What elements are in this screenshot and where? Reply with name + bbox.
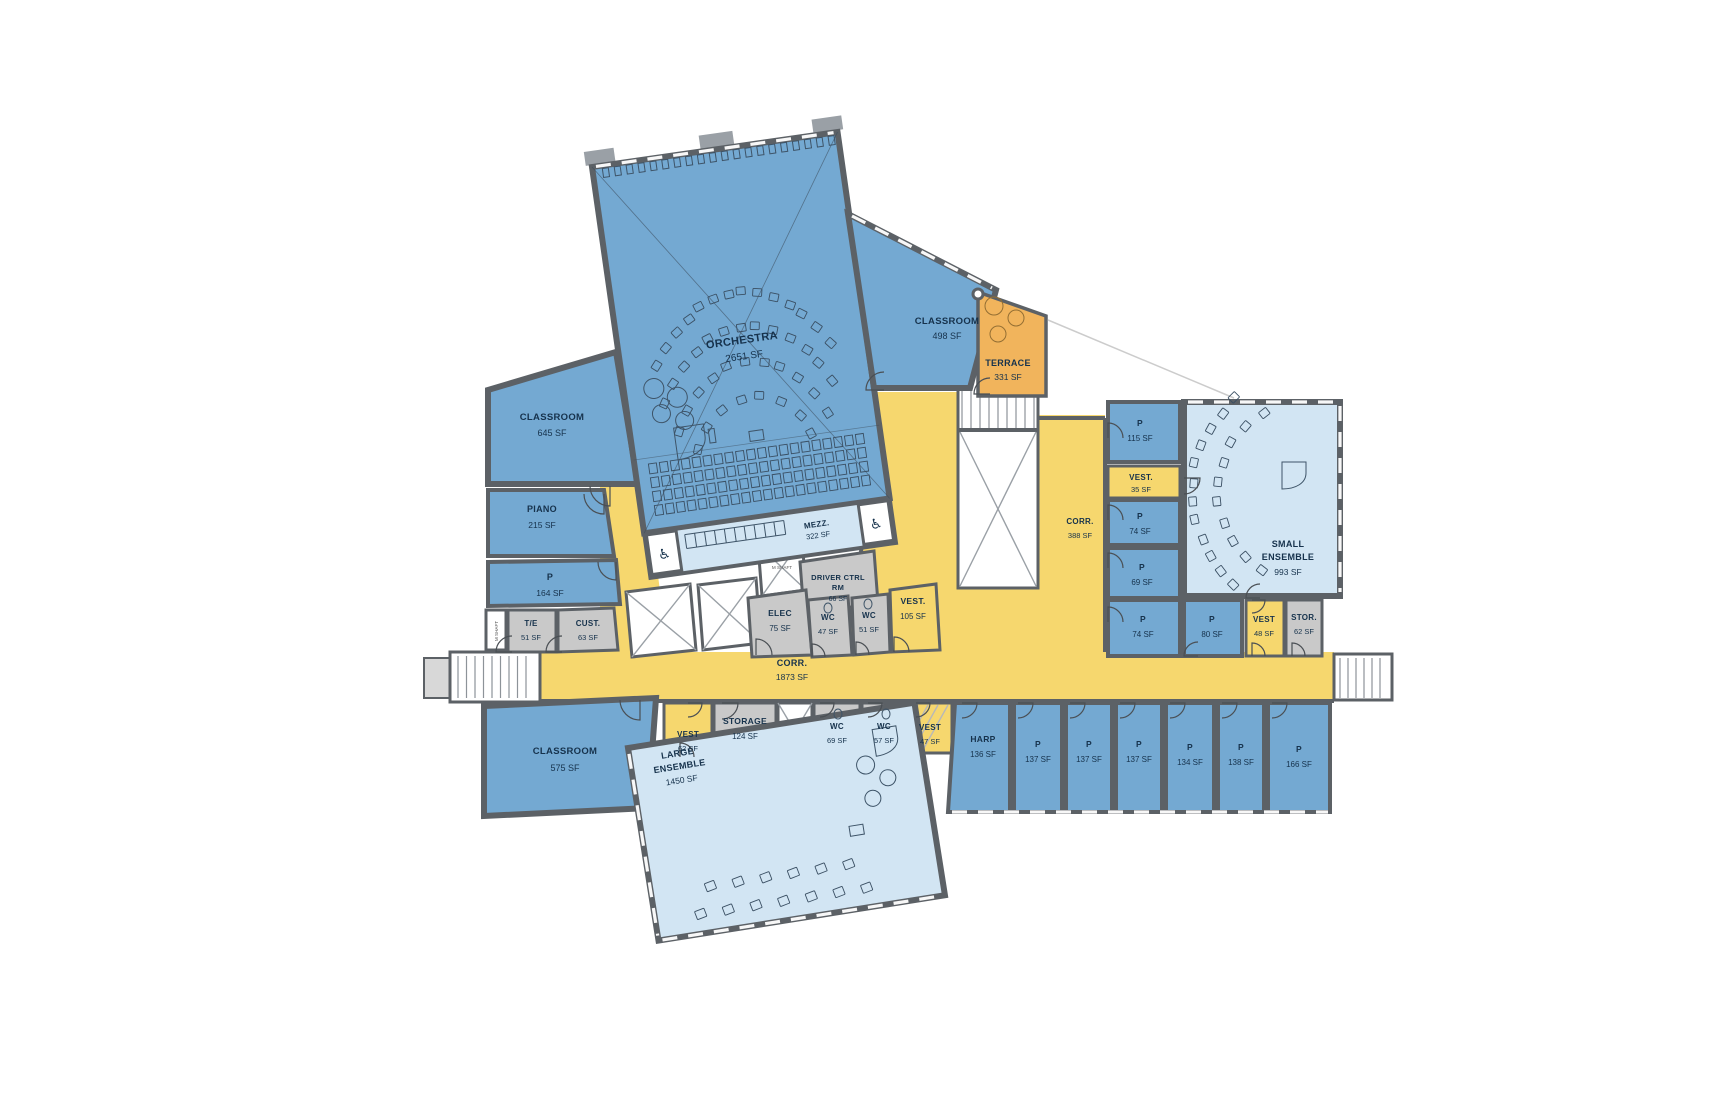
room-label-driver-area: 66 SF <box>829 596 848 603</box>
room-label-p-137c-name: P <box>1136 739 1142 749</box>
room-label-vest-35-area: 35 SF <box>1131 485 1151 494</box>
west-stoop <box>424 658 450 698</box>
room-p-166 <box>1268 703 1330 812</box>
room-label-classroom-575-name: CLASSROOM <box>533 746 597 757</box>
southeast-row <box>898 703 1330 812</box>
room-label-piano-name: PIANO <box>527 504 557 514</box>
room-label-classroom-645-name: CLASSROOM <box>520 412 584 423</box>
room-label-wc-47-name: WC <box>821 613 835 622</box>
room-label-corr-main-name: CORR. <box>777 658 808 668</box>
room-label-cust-area: 63 SF <box>578 633 598 642</box>
corridor-main-shape <box>540 652 1334 702</box>
room-label-vest-35-name: VEST. <box>1129 473 1153 482</box>
room-label-p-115-name: P <box>1137 418 1143 428</box>
room-label-classroom-645-area: 645 SF <box>537 428 567 438</box>
room-label-stor-62-name: STOR. <box>1291 613 1317 622</box>
room-label-wc-47-area: 47 SF <box>818 627 838 636</box>
column-dot <box>973 289 983 299</box>
room-label-vest-105-name: VEST. <box>900 596 925 606</box>
room-label-p-166-name: P <box>1296 744 1302 754</box>
room-label-p-69-area: 69 SF <box>1131 578 1152 587</box>
room-label-classroom-498-area: 498 SF <box>932 331 962 341</box>
room-label-terrace-area: 331 SF <box>994 372 1021 382</box>
room-p-74b <box>1108 600 1180 656</box>
room-label-vest-105-area: 105 SF <box>900 612 926 621</box>
room-small-ensemble <box>1184 402 1340 596</box>
room-label-p-115-area: 115 SF <box>1127 434 1152 443</box>
room-label-vest-47-area: 47 SF <box>920 737 940 746</box>
room-label-p-164-name: P <box>547 572 553 582</box>
room-label-small-ensemble-1: SMALL <box>1272 539 1305 549</box>
room-te <box>508 610 556 652</box>
room-label-p-137b-area: 137 SF <box>1076 755 1102 764</box>
site-edge-line <box>1048 320 1234 398</box>
room-label-wc-57-name: WC <box>877 722 891 731</box>
room-classroom-498 <box>848 214 996 388</box>
room-label-classroom-498-name: CLASSROOM <box>915 316 979 327</box>
room-label-stor-62-area: 62 SF <box>1294 627 1314 636</box>
room-label-p-80-area: 80 SF <box>1201 630 1222 639</box>
room-label-vest-47-name: VEST <box>919 723 941 732</box>
room-label-wc-57-area: 57 SF <box>874 736 894 745</box>
room-label-p-74a-name: P <box>1137 511 1143 521</box>
room-label-p-164-area: 164 SF <box>536 588 563 598</box>
room-label-te-name: T/E <box>524 619 538 628</box>
room-label-classroom-575-area: 575 SF <box>550 763 580 773</box>
room-label-p-166-area: 166 SF <box>1286 760 1312 769</box>
room-p-115 <box>1108 402 1180 462</box>
room-label-p-137b-name: P <box>1086 739 1092 749</box>
room-label-p-74b-area: 74 SF <box>1132 630 1153 639</box>
room-label-driver-2: RM <box>832 583 844 592</box>
northeast-block <box>848 214 1234 398</box>
room-label-p-138-name: P <box>1238 742 1244 752</box>
room-label-elec-area: 75 SF <box>769 624 790 633</box>
room-label-small-ensemble-area: 993 SF <box>1274 567 1301 577</box>
room-label-p-137c-area: 137 SF <box>1126 755 1152 764</box>
room-label-driver-1: DRIVER CTRL <box>811 573 865 582</box>
room-label-p-74a-area: 74 SF <box>1129 527 1150 536</box>
room-label-p-137a-name: P <box>1035 739 1041 749</box>
room-label-wc-69-name: WC <box>830 722 844 731</box>
room-label-p-69-name: P <box>1139 562 1145 572</box>
room-p-164 <box>488 560 620 606</box>
room-p-80 <box>1184 600 1242 656</box>
floor-plan-svg: ♿ ♿ ORCHESTRA 2651 SF MEZZ. 322 SF <box>0 0 1718 1106</box>
room-label-small-ensemble-2: ENSEMBLE <box>1262 552 1314 562</box>
room-label-elec-name: ELEC <box>768 608 792 618</box>
room-label-wc-51-area: 51 SF <box>859 625 879 634</box>
room-label-vest-48-area: 48 SF <box>1254 629 1274 638</box>
east-entry-stair <box>1334 654 1392 700</box>
shaft-label-west: M SHAFT <box>494 621 499 641</box>
room-p-74a <box>1108 500 1180 545</box>
large-ensemble-group: LARGE ENSEMBLE 1450 SF <box>628 703 945 941</box>
room-label-vest-62-area: 62 SF <box>678 744 698 753</box>
room-label-p-134-area: 134 SF <box>1177 758 1203 767</box>
room-label-vest-48-name: VEST <box>1253 615 1275 624</box>
shaft-label-center: M SHAFT <box>772 565 792 570</box>
room-label-wc-69-area: 69 SF <box>827 736 847 745</box>
room-label-piano-area: 215 SF <box>528 520 555 530</box>
room-label-storage-124-name: STORAGE <box>723 716 767 726</box>
room-label-harp-area: 136 SF <box>970 750 996 759</box>
room-label-cust-name: CUST. <box>576 619 601 628</box>
room-label-harp-name: HARP <box>970 734 995 744</box>
room-label-corr-388-area: 388 SF <box>1068 531 1093 540</box>
room-label-te-area: 51 SF <box>521 633 541 642</box>
wheelchair-icon: ♿ <box>869 516 884 534</box>
room-label-terrace-name: TERRACE <box>985 358 1031 368</box>
room-label-wc-51-name: WC <box>862 611 876 620</box>
room-label-p-80-name: P <box>1209 614 1215 624</box>
room-label-corr-main-area: 1873 SF <box>776 672 808 682</box>
room-label-p-134-name: P <box>1187 742 1193 752</box>
room-label-p-74b-name: P <box>1140 614 1146 624</box>
floor-plan-canvas: ♿ ♿ ORCHESTRA 2651 SF MEZZ. 322 SF <box>0 0 1718 1106</box>
room-label-corr-388-name: CORR. <box>1066 517 1093 526</box>
room-label-p-137a-area: 137 SF <box>1025 755 1051 764</box>
wheelchair-icon: ♿ <box>657 546 672 564</box>
room-label-vest-62-name: VEST <box>677 730 699 739</box>
room-cust <box>558 608 618 652</box>
room-p-69 <box>1108 548 1180 598</box>
room-label-storage-124-area: 124 SF <box>732 732 758 741</box>
room-label-p-138-area: 138 SF <box>1228 758 1254 767</box>
